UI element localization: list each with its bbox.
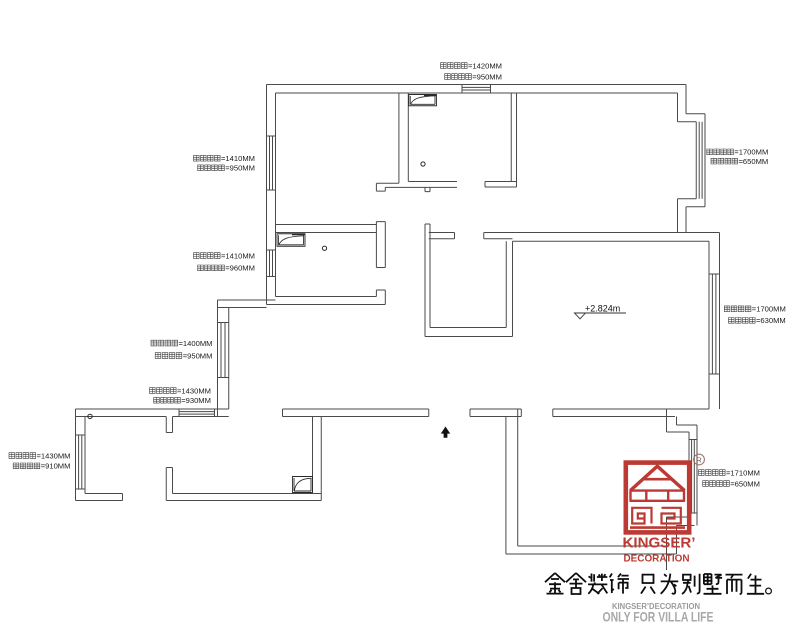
svg-text:=1700MM: =1700MM [734, 148, 768, 157]
svg-text:=650MM: =650MM [739, 157, 769, 166]
svg-text:=910MM: =910MM [41, 462, 71, 471]
svg-text:=1400MM: =1400MM [179, 339, 213, 348]
svg-text:=930MM: =930MM [181, 396, 211, 405]
svg-text:+2.824m: +2.824m [585, 304, 620, 314]
svg-text:=1700MM: =1700MM [752, 305, 786, 314]
svg-text:=960MM: =960MM [225, 264, 255, 273]
svg-text:=1410MM: =1410MM [221, 251, 255, 260]
svg-text:ONLY FOR VILLA LIFE: ONLY FOR VILLA LIFE [603, 610, 714, 625]
svg-text:=950MM: =950MM [225, 164, 255, 173]
svg-text:DECORATION: DECORATION [624, 554, 690, 565]
svg-text:=650MM: =650MM [730, 479, 760, 488]
svg-text:=1420MM: =1420MM [468, 61, 502, 70]
svg-text:KINGSER’: KINGSER’ [623, 536, 696, 552]
svg-text:=950MM: =950MM [472, 72, 502, 81]
svg-text:=950MM: =950MM [183, 351, 213, 360]
svg-text:=630MM: =630MM [756, 316, 786, 325]
svg-text:=1430MM: =1430MM [37, 451, 71, 460]
svg-text:=1410MM: =1410MM [221, 154, 255, 163]
svg-text:=1430MM: =1430MM [177, 386, 211, 395]
svg-text:=1710MM: =1710MM [726, 468, 760, 477]
svg-text:R: R [696, 455, 702, 464]
